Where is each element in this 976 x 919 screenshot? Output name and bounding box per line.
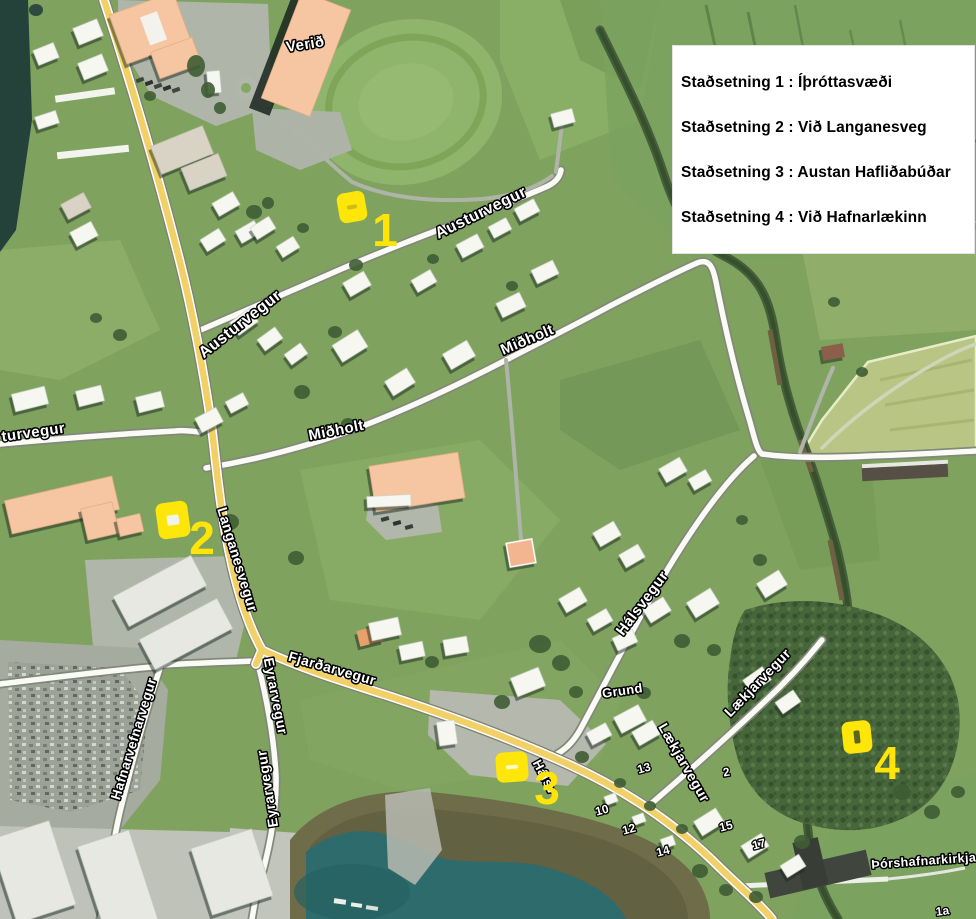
legend-box: Staðsetning 1 : Íþróttasvæði Staðsetning… [672, 45, 975, 254]
marker-2-number: 2 [189, 512, 215, 564]
marker-1[interactable] [336, 190, 369, 224]
marker-3-inner [506, 765, 518, 770]
marker-4-number: 4 [874, 737, 900, 789]
marker-4[interactable] [841, 720, 873, 755]
orange-house-mid [506, 539, 536, 567]
house-number-1a: 1a [935, 903, 950, 919]
legend-item-1: Staðsetning 1 : Íþróttasvæði [681, 74, 892, 92]
marker-3-number: 3 [534, 762, 560, 814]
legend-item-2: Staðsetning 2 : Við Langanesveg [681, 119, 927, 137]
marker-2[interactable] [155, 500, 192, 540]
marker-1-number: 1 [372, 204, 398, 256]
marker-3[interactable] [495, 751, 529, 783]
legend-item-3: Staðsetning 3 : Austan Hafliðabúðar [681, 164, 951, 182]
aerial-map-screenshot: VeriðAusturvegurAusturvegurturvegurMiðho… [0, 0, 976, 919]
legend-item-4: Staðsetning 4 : Við Hafnarlækinn [681, 209, 927, 227]
marker-2-inner [166, 514, 179, 526]
